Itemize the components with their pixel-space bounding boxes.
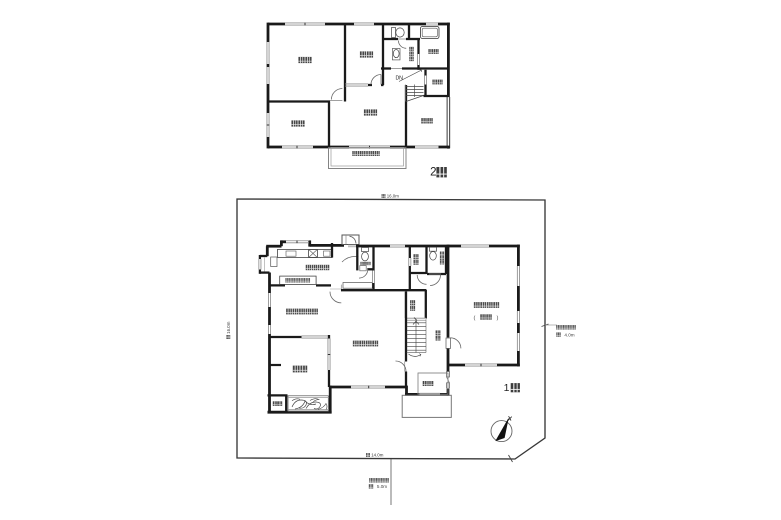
svg-text:16.0m: 16.0m (387, 194, 400, 199)
svg-text:(: ( (474, 315, 476, 321)
svg-text:5.0m: 5.0m (377, 484, 387, 489)
svg-text:DN: DN (395, 76, 403, 82)
svg-text:14.0m: 14.0m (371, 453, 384, 458)
svg-text:4.0m: 4.0m (564, 332, 574, 337)
svg-text:2: 2 (430, 166, 436, 178)
svg-text:): ) (497, 315, 499, 321)
svg-text:16.0m: 16.0m (226, 321, 231, 334)
svg-text:1: 1 (504, 383, 510, 394)
